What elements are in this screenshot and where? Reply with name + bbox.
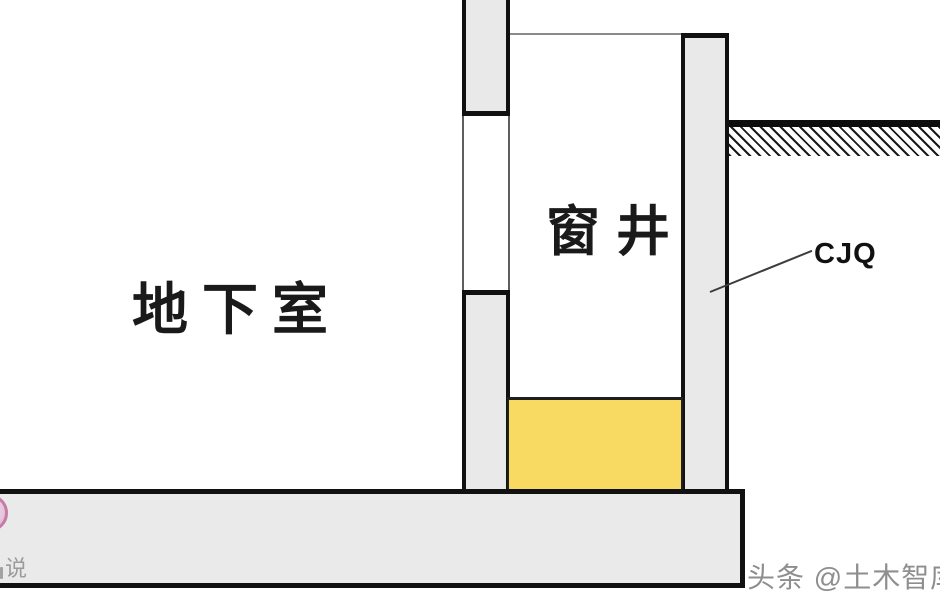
watermark-left-text: 说 — [5, 558, 27, 580]
basement-window-opening — [462, 116, 510, 290]
basement-label: 地下室 — [132, 282, 342, 338]
ground-hatch — [729, 127, 940, 156]
basement-wall-upper — [462, 0, 510, 116]
basement-wall-lower — [462, 290, 510, 494]
watermark-toutiao: 头条 @土木智库 — [747, 561, 940, 595]
section-diagram: 地下室 窗井 CJQ 头条 @土木智库 说 — [0, 0, 940, 608]
well-bottom-fill — [507, 397, 683, 492]
watermark-left-partial-stroke — [0, 567, 3, 579]
cjq-retaining-wall — [681, 33, 729, 494]
ground-line — [729, 120, 940, 127]
well-top-line — [510, 33, 681, 35]
cjq-tag-label: CJQ — [814, 240, 877, 269]
base-slab — [0, 489, 745, 588]
window-well-label: 窗井 — [546, 204, 686, 258]
